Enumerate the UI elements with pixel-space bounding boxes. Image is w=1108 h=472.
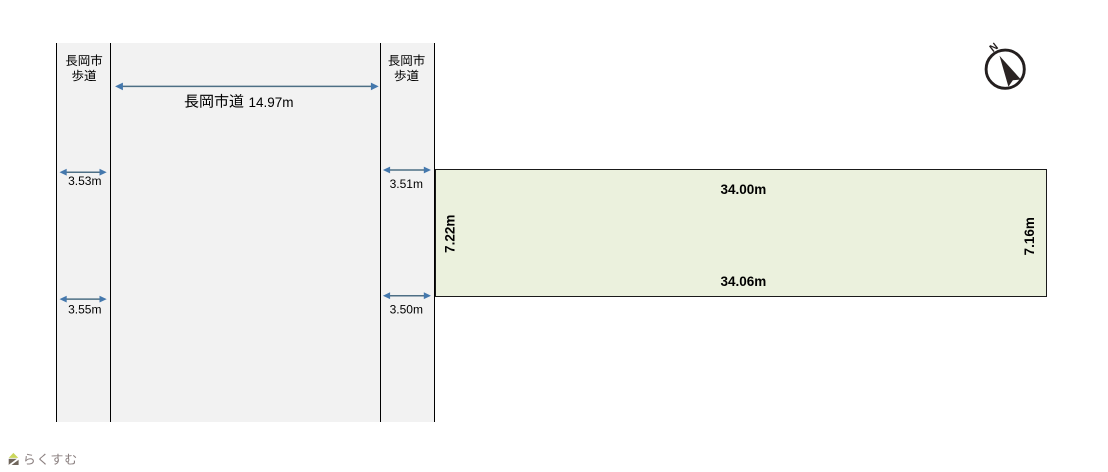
svg-text:3.53m: 3.53m [68,174,101,188]
svg-text:3.51m: 3.51m [390,177,423,191]
svg-text:3.50m: 3.50m [390,303,423,317]
svg-text:14.97m: 14.97m [249,95,294,110]
svg-text:34.00m: 34.00m [721,182,767,197]
svg-text:7.16m: 7.16m [1022,217,1037,255]
svg-text:3.55m: 3.55m [68,303,101,317]
svg-text:34.06m: 34.06m [721,274,767,289]
svg-text:7.22m: 7.22m [443,215,458,253]
